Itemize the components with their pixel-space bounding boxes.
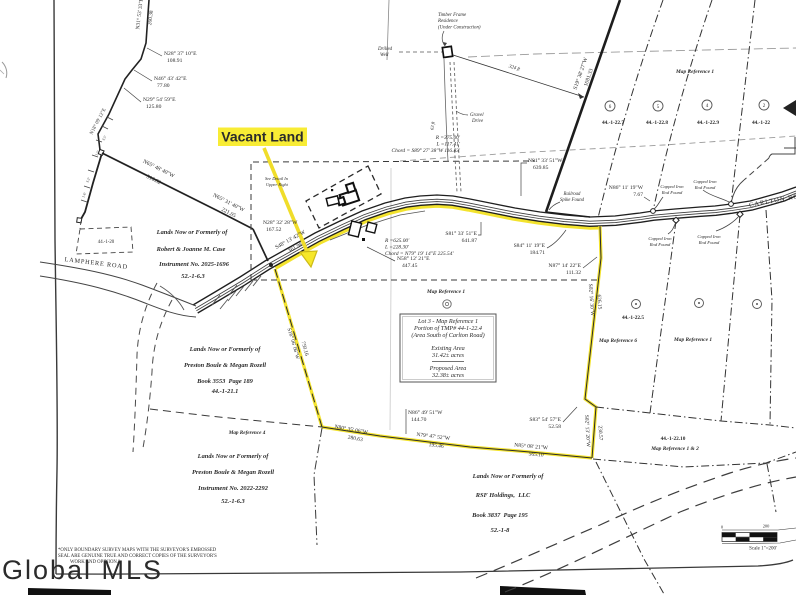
svg-text:52.58: 52.58 bbox=[548, 424, 561, 430]
svg-text:Railroad: Railroad bbox=[563, 192, 581, 197]
svg-text:44.-1-22.5: 44.-1-22.5 bbox=[622, 315, 644, 321]
svg-text:Lands Now or Formerly of: Lands Now or Formerly of bbox=[189, 346, 262, 353]
svg-text:Preston Boule & Megan Rozell: Preston Boule & Megan Rozell bbox=[192, 469, 274, 476]
svg-text:Lands Now or Formerly of: Lands Now or Formerly of bbox=[156, 229, 229, 236]
svg-text:167.52: 167.52 bbox=[266, 227, 282, 233]
svg-text:Map Reference 1: Map Reference 1 bbox=[675, 69, 714, 75]
svg-text:125.80: 125.80 bbox=[146, 104, 162, 110]
svg-text:Lot 3 - Map Reference 1: Lot 3 - Map Reference 1 bbox=[417, 318, 478, 325]
svg-text:Well: Well bbox=[380, 53, 389, 58]
svg-text:Scale 1"=200': Scale 1"=200' bbox=[749, 547, 777, 552]
svg-text:Chord = S89° 27' 38"W 116.83': Chord = S89° 27' 38"W 116.83' bbox=[392, 147, 461, 154]
svg-text:(Under Construction): (Under Construction) bbox=[438, 26, 481, 31]
svg-text:N28° 37' 10"E: N28° 37' 10"E bbox=[164, 50, 197, 57]
svg-text:44.-1-20: 44.-1-20 bbox=[98, 240, 115, 245]
svg-text:Rod Found: Rod Found bbox=[694, 185, 716, 190]
svg-text:Gravel: Gravel bbox=[470, 113, 484, 118]
svg-text:Upper Right: Upper Right bbox=[266, 182, 289, 187]
svg-text:Capped Iron: Capped Iron bbox=[693, 179, 717, 184]
svg-text:N28° 32' 28"W: N28° 32' 28"W bbox=[263, 219, 298, 226]
svg-text:N29° 54' 59"E: N29° 54' 59"E bbox=[143, 96, 176, 103]
svg-text:Rod Found: Rod Found bbox=[649, 242, 671, 247]
svg-text:L =228.30': L =228.30' bbox=[384, 245, 410, 251]
svg-text:Capped Iron: Capped Iron bbox=[648, 236, 672, 241]
svg-text:Vacant Land: Vacant Land bbox=[221, 129, 303, 145]
svg-text:N87° 14' 22"E: N87° 14' 22"E bbox=[548, 262, 581, 269]
svg-text:N81° 33' 51"W: N81° 33' 51"W bbox=[528, 157, 563, 164]
svg-text:Chord = N79° 19' 14"E 225.54': Chord = N79° 19' 14"E 225.54' bbox=[385, 250, 454, 257]
svg-text:32.38± acres: 32.38± acres bbox=[431, 372, 465, 379]
svg-text:Residence: Residence bbox=[437, 19, 459, 24]
svg-text:52.-1-8: 52.-1-8 bbox=[491, 527, 510, 534]
svg-text:Lands Now or Formerly of: Lands Now or Formerly of bbox=[197, 453, 270, 460]
svg-text:111.32: 111.32 bbox=[566, 270, 581, 276]
svg-text:S84° 11' 19"E: S84° 11' 19"E bbox=[514, 242, 546, 249]
svg-text:31.42± acres: 31.42± acres bbox=[431, 352, 465, 359]
svg-text:S83° 54' 57"E: S83° 54' 57"E bbox=[529, 416, 561, 423]
svg-text:Drilled: Drilled bbox=[377, 47, 393, 52]
svg-text:Timber Frame: Timber Frame bbox=[438, 13, 467, 18]
svg-text:Map Reference 1: Map Reference 1 bbox=[426, 289, 465, 295]
svg-text:R =625.00': R =625.00' bbox=[384, 238, 410, 244]
svg-text:S81° 33' 51"E: S81° 33' 51"E bbox=[445, 230, 477, 237]
svg-text:641.87: 641.87 bbox=[462, 238, 478, 244]
svg-text:R =375.00': R =375.00' bbox=[435, 135, 461, 141]
svg-text:44.-1-21.1: 44.-1-21.1 bbox=[211, 388, 239, 395]
svg-text:Map Reference 4: Map Reference 4 bbox=[228, 430, 266, 436]
svg-text:230.57: 230.57 bbox=[597, 425, 604, 440]
svg-text:52.-1-6.3: 52.-1-6.3 bbox=[221, 498, 245, 505]
svg-text:200: 200 bbox=[763, 524, 770, 529]
svg-text:626.15: 626.15 bbox=[595, 294, 602, 310]
svg-text:Map Reference 1: Map Reference 1 bbox=[673, 337, 712, 343]
svg-text:Book 3553 Page 189: Book 3553 Page 189 bbox=[196, 378, 254, 385]
svg-text:Existing Area: Existing Area bbox=[430, 345, 465, 352]
svg-text:Drive: Drive bbox=[471, 119, 484, 124]
svg-text:Rod Found: Rod Found bbox=[661, 190, 683, 195]
svg-text:(Area South of Carlton Road): (Area South of Carlton Road) bbox=[411, 332, 484, 339]
svg-text:*ONLY BOUNDARY SURVEY MAPS WIT: *ONLY BOUNDARY SURVEY MAPS WITH THE SURV… bbox=[58, 548, 217, 553]
svg-text:Spike Found: Spike Found bbox=[560, 198, 585, 203]
svg-text:7.67: 7.67 bbox=[633, 192, 643, 198]
svg-text:N86° 11' 19"W: N86° 11' 19"W bbox=[609, 184, 644, 191]
svg-text:See Detail In: See Detail In bbox=[265, 176, 289, 181]
svg-text:Portion of TMP# 44-1-22.4: Portion of TMP# 44-1-22.4 bbox=[413, 325, 482, 332]
svg-text:Preston Boule & Megan Rozell: Preston Boule & Megan Rozell bbox=[184, 362, 266, 369]
svg-text:44.-1-22.7: 44.-1-22.7 bbox=[602, 120, 624, 126]
svg-text:Robert & Joanne M. Case: Robert & Joanne M. Case bbox=[156, 246, 226, 253]
svg-text:447.45: 447.45 bbox=[402, 263, 418, 269]
svg-text:639.85: 639.85 bbox=[533, 165, 549, 171]
svg-text:L =117.41': L =117.41' bbox=[436, 142, 461, 148]
svg-text:Rod Found: Rod Found bbox=[698, 240, 720, 245]
svg-text:44.-1-22.8: 44.-1-22.8 bbox=[646, 120, 668, 126]
svg-text:Instrument No. 2022-2292: Instrument No. 2022-2292 bbox=[197, 485, 269, 492]
svg-text:108.91: 108.91 bbox=[167, 58, 183, 64]
svg-text:N86° 49' 51"W: N86° 49' 51"W bbox=[408, 409, 443, 416]
svg-text:44.-1-22.10: 44.-1-22.10 bbox=[661, 436, 686, 442]
svg-text:44.-1-22.9: 44.-1-22.9 bbox=[697, 120, 719, 126]
svg-text:52.-1-6.3: 52.-1-6.3 bbox=[181, 273, 205, 280]
svg-text:Capped Iron: Capped Iron bbox=[660, 184, 684, 189]
svg-text:N46° 43' 42"E: N46° 43' 42"E bbox=[154, 75, 187, 82]
svg-text:77.80: 77.80 bbox=[157, 83, 170, 89]
svg-text:RSF Holdings, LLC: RSF Holdings, LLC bbox=[475, 492, 531, 499]
svg-text:184.71: 184.71 bbox=[530, 250, 546, 256]
svg-text:44.-1-22: 44.-1-22 bbox=[752, 120, 770, 126]
svg-text:Map Reference 1 & 2: Map Reference 1 & 2 bbox=[650, 446, 699, 452]
svg-text:Lands Now or Formerly of: Lands Now or Formerly of bbox=[472, 473, 545, 480]
svg-text:Proposed Area: Proposed Area bbox=[429, 365, 467, 372]
svg-text:144.70: 144.70 bbox=[411, 417, 427, 423]
svg-text:Map Reference 6: Map Reference 6 bbox=[598, 338, 637, 344]
svg-text:Global MLS: Global MLS bbox=[2, 555, 163, 585]
svg-text:Book 3837 Page 195: Book 3837 Page 195 bbox=[471, 512, 529, 519]
svg-text:Instrument No. 2025-1696: Instrument No. 2025-1696 bbox=[158, 261, 230, 268]
svg-text:Capped Iron: Capped Iron bbox=[697, 234, 721, 239]
